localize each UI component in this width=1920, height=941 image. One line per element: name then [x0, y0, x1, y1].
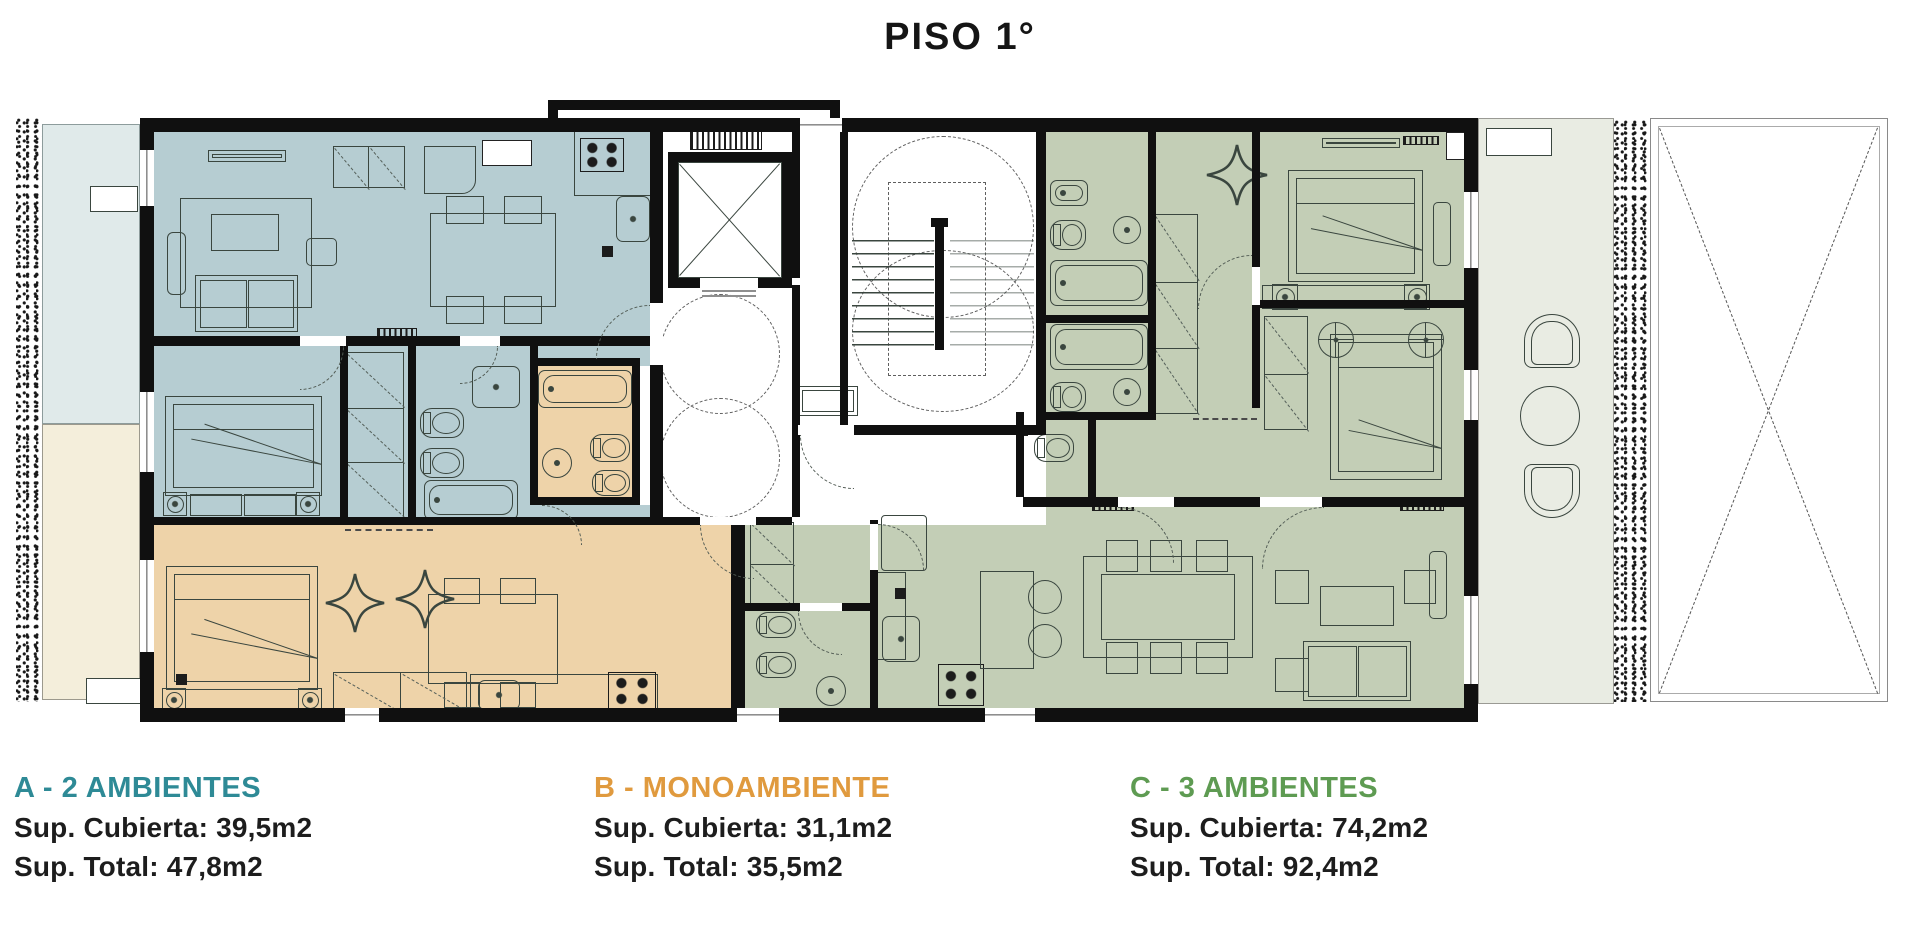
side-table-a — [306, 238, 337, 266]
coffee-table-c — [1320, 586, 1394, 626]
pouf-star-b1 — [324, 572, 386, 634]
door-c-terrace-2 — [1464, 370, 1478, 420]
terrace-table — [1520, 386, 1580, 446]
legend-unit-a-label: A - 2 AMBIENTES — [14, 772, 534, 805]
closet-c-div — [1154, 282, 1198, 283]
wardrobe-b-div — [400, 672, 401, 710]
elevator-threshold — [702, 295, 756, 297]
wardrobe-a-top-divider — [368, 146, 369, 188]
opening-lintel — [1193, 418, 1257, 420]
terrace-chair-1 — [1524, 314, 1580, 368]
hedge-left — [16, 118, 42, 702]
wall-a-bedroom — [154, 336, 650, 346]
window-a-living — [140, 150, 154, 206]
chair — [444, 578, 480, 604]
door-gap-a-bath — [460, 336, 500, 346]
chair — [504, 296, 542, 324]
sink-b — [542, 448, 572, 478]
dining-table-b — [428, 594, 558, 684]
wall-c-bed1-left — [1252, 132, 1260, 267]
legend-unit-c: C - 3 AMBIENTES Sup. Cubierta: 74,2m2 Su… — [1130, 772, 1650, 883]
closet-a-div — [346, 462, 404, 463]
door-gap-a-bedroom — [300, 336, 346, 346]
legend-unit-b-cubierta: Sup. Cubierta: 31,1m2 — [594, 812, 1114, 844]
toilet-a — [420, 408, 464, 438]
wall-c-bed2-left — [1252, 308, 1260, 408]
wardrobe-c-bed2-div — [1264, 374, 1308, 375]
wall-niche-a — [482, 140, 532, 166]
stove-a — [580, 138, 624, 172]
door-c-terrace-3 — [1464, 596, 1478, 684]
bed-bench — [244, 494, 296, 516]
legend-unit-c-cubierta: Sup. Cubierta: 74,2m2 — [1130, 812, 1650, 844]
stair-center-cap — [931, 218, 948, 227]
toilet-c2 — [1050, 382, 1086, 412]
bathtub-c2 — [1050, 324, 1148, 370]
stair-treads-right — [950, 240, 1034, 352]
bed-bench — [190, 494, 242, 516]
wall-c-living-top — [1023, 497, 1466, 507]
toilet-c4 — [756, 612, 796, 638]
wall-elevator-top — [668, 152, 792, 162]
knob-circle — [1113, 216, 1141, 244]
stove-b — [608, 672, 656, 710]
door-gap-c-kitchen — [870, 524, 878, 570]
chair — [446, 296, 484, 324]
kitchen-dot-a — [602, 246, 613, 257]
terrace-planter — [1486, 128, 1552, 156]
legend: A - 2 AMBIENTES Sup. Cubierta: 39,5m2 Su… — [0, 772, 1920, 932]
chair — [1196, 540, 1228, 572]
wall-core-mid — [792, 132, 800, 278]
kitchen-sink-a — [616, 196, 650, 242]
balcony-unit-b — [42, 424, 140, 700]
wardrobe-a-top — [333, 146, 405, 188]
wall-bath-b-bottom — [530, 497, 640, 505]
wall-c-bath-bottom — [1046, 412, 1156, 420]
balcony-unit-a — [42, 124, 140, 424]
turning-circle-1 — [660, 294, 780, 414]
turning-circle-2 — [660, 398, 780, 518]
core-sliver — [640, 366, 650, 505]
wall-stairs-right — [1036, 132, 1046, 425]
bar-stool — [1028, 580, 1062, 614]
toilet-c3 — [1034, 434, 1074, 462]
wall-core-room-right — [792, 285, 800, 517]
chair — [446, 196, 484, 224]
wall-stairs-left — [840, 132, 848, 425]
bed-a — [165, 396, 322, 496]
bidet-a — [420, 448, 464, 478]
floor-dot-b — [176, 674, 187, 685]
kitchen-dot-c — [895, 588, 906, 599]
door-gap-a-entry — [650, 303, 663, 365]
sofa-a — [195, 275, 298, 332]
legend-unit-c-label: C - 3 AMBIENTES — [1130, 772, 1650, 805]
side-table-c — [1275, 570, 1309, 604]
legend-unit-a: A - 2 AMBIENTES Sup. Cubierta: 39,5m2 Su… — [14, 772, 534, 883]
wall-closet-a-left — [340, 346, 348, 525]
toilet-b — [590, 434, 630, 462]
dining-table-c-inner — [1101, 574, 1235, 640]
door-gap-c-entry — [798, 425, 854, 435]
chair — [500, 578, 536, 604]
kitchen-sink-c — [882, 616, 920, 662]
window-core-top — [800, 118, 842, 132]
tv-console-a — [208, 150, 286, 162]
wall-bath-b-right — [632, 358, 640, 505]
door-gap-c-toilette — [800, 603, 842, 611]
bar-counter-c — [980, 571, 1034, 669]
floor-plan — [0, 0, 1920, 760]
shelf-c1-side — [1433, 202, 1451, 266]
wall-bath-b-top — [538, 358, 640, 366]
sofa-c — [1303, 641, 1411, 701]
door-gap-c-living-1 — [1118, 497, 1174, 507]
dining-table-a — [430, 213, 556, 307]
bar-stool — [1028, 624, 1062, 658]
window-b-studio — [140, 560, 154, 652]
cabinet-a — [424, 146, 476, 194]
side-shelf-a — [167, 232, 186, 295]
hedge-right — [1614, 120, 1648, 702]
bed-caster — [296, 492, 320, 516]
legend-unit-b-label: B - MONOAMBIENTE — [594, 772, 1114, 805]
closet-c-div — [1154, 348, 1198, 349]
vent-grille — [1403, 136, 1439, 145]
wall-c-bath-right — [1148, 132, 1156, 420]
bathtub-c1 — [1050, 260, 1148, 306]
bed-b — [166, 566, 318, 690]
terrace-chair-2 — [1524, 464, 1580, 518]
opening-lintel — [345, 529, 433, 531]
wall-ab-divider — [154, 517, 792, 525]
shelf-c-bed1 — [1322, 138, 1400, 148]
legend-unit-a-cubierta: Sup. Cubierta: 39,5m2 — [14, 812, 534, 844]
wardrobe-c-hall-div — [750, 564, 794, 565]
toilet-c1 — [1050, 220, 1086, 250]
legend-unit-a-total: Sup. Total: 47,8m2 — [14, 851, 534, 883]
wall-closet-a-right — [408, 346, 416, 525]
wall-elevator-left — [668, 152, 678, 288]
core-parapet — [548, 100, 840, 110]
stair-treads-left — [852, 240, 934, 352]
kitchen-sink-b — [478, 680, 520, 710]
closet-a-div — [346, 408, 404, 409]
elevator-threshold — [702, 290, 756, 292]
sink-c4 — [816, 676, 846, 706]
bed-c1 — [1288, 170, 1423, 282]
wall-bath-ab — [530, 346, 538, 505]
door-gap-b-entry — [700, 517, 756, 525]
core-parapet-leg — [548, 100, 558, 130]
bidet-c4 — [756, 652, 796, 678]
bathtub-a — [424, 480, 518, 520]
shower-tray-c1 — [1050, 180, 1088, 206]
door-gap-elevator — [700, 278, 758, 288]
floor-plan-page: PISO 1° — [0, 0, 1920, 941]
stair-center-wall — [935, 224, 944, 350]
chair — [504, 196, 542, 224]
window-b-bottom — [345, 708, 379, 722]
tv-console-c — [1429, 551, 1447, 619]
door-c-terrace-1 — [1464, 192, 1478, 268]
window-a-bedroom — [140, 392, 154, 472]
bed-c2 — [1330, 334, 1442, 480]
legend-unit-b: B - MONOAMBIENTE Sup. Cubierta: 31,1m2 S… — [594, 772, 1114, 883]
door-gap-c-bed1 — [1252, 267, 1260, 305]
balcony-planter-bottom — [86, 678, 144, 704]
chair — [1150, 642, 1182, 674]
wall-c-bath3-div — [1088, 412, 1096, 497]
stove-c — [938, 664, 984, 706]
bathtub-b — [538, 370, 632, 408]
wall-core-left-lower — [650, 365, 663, 517]
wardrobe-c-bed2 — [1264, 316, 1308, 430]
wall-core-left-upper — [650, 132, 663, 303]
legend-unit-b-total: Sup. Total: 35,5m2 — [594, 851, 1114, 883]
wall-c-bath-divider — [1046, 315, 1148, 323]
coffee-table-a — [211, 214, 279, 251]
wall-c-bed1-bottom — [1252, 300, 1466, 308]
chair — [1196, 642, 1228, 674]
door-gap-c-living-2 — [1260, 497, 1322, 507]
chair — [1106, 642, 1138, 674]
window-c-bottom-2 — [985, 708, 1035, 722]
balcony-planter-top — [90, 186, 138, 212]
wall-bottom — [140, 708, 1478, 722]
bidet-b — [592, 470, 630, 496]
knob-circle — [1113, 378, 1141, 406]
side-table-c — [1275, 658, 1309, 692]
bed-caster — [163, 492, 187, 516]
landing-bench — [798, 386, 858, 416]
wall-c-bath3-left — [1016, 412, 1024, 497]
legend-unit-c-total: Sup. Total: 92,4m2 — [1130, 851, 1650, 883]
wall-elevator-right — [782, 152, 792, 288]
window-c-bottom-1 — [737, 708, 779, 722]
